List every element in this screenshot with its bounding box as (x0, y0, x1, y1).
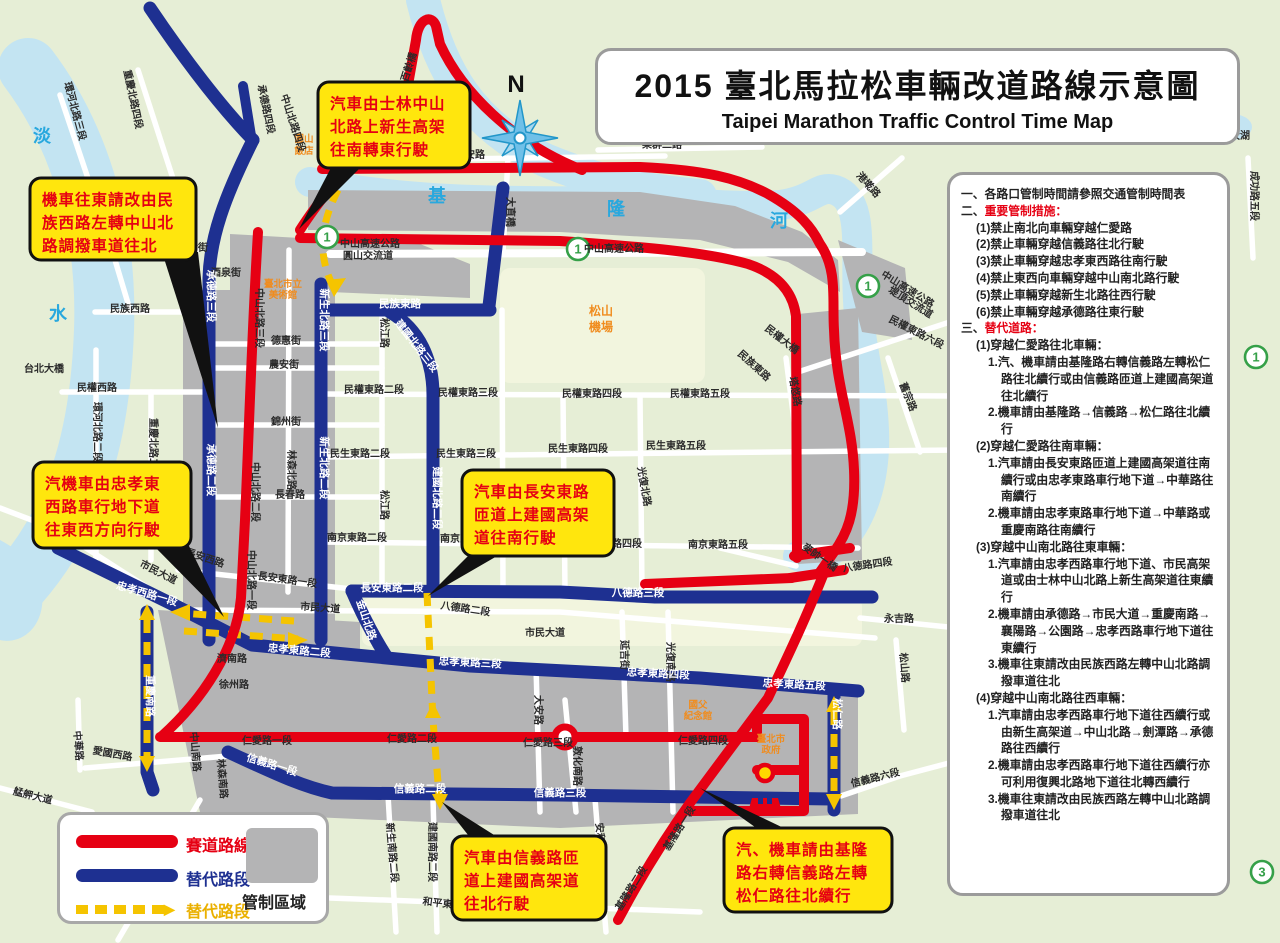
title-box: 2015 臺北馬拉松車輛改道路線示意圖 Taipei Marathon Traf… (595, 48, 1240, 145)
callout-text: 道往南行駛 (474, 528, 557, 547)
panel-line: (4)穿越中山南北路往西車輛： (961, 690, 1218, 707)
svg-text:1: 1 (864, 279, 871, 294)
map-label: 重慶南路 (144, 675, 157, 717)
map-label: 松仁路 (831, 698, 844, 730)
panel-line: 1.汽車請由忠孝西路車行地下道往西續行或由新生高架道→中山北路→劍潭路→承德路往… (961, 707, 1218, 757)
callout-text: 松仁路往北續行 (736, 886, 852, 905)
highway-shield: 1 (857, 275, 879, 297)
map-label: 永吉路 (883, 612, 915, 625)
map-label: 國父 (688, 700, 708, 711)
finish-gate-icon (748, 798, 782, 812)
svg-text:1: 1 (323, 230, 330, 245)
panel-line: (1)禁止南北向車輛穿越仁愛路 (961, 220, 1218, 237)
panel-line: 二、重要管制措施： (961, 203, 1218, 220)
traffic-control-notes-panel: 一、各路口管制時間請參照交通管制時間表二、重要管制措施：(1)禁止南北向車輛穿越… (947, 172, 1230, 896)
svg-text:3: 3 (1258, 865, 1265, 880)
legend-control-zone-swatch (246, 828, 318, 883)
map-label: 民族西路 (110, 302, 151, 315)
panel-line: 2.機車請由承德路→市民大道→重慶南路→襄陽路→公園路→忠孝西路車行地下道往東續… (961, 606, 1218, 656)
page-title-en: Taipei Marathon Traffic Control Time Map (598, 111, 1237, 134)
map-label: 民生東路四段 (548, 442, 608, 455)
map-label: 延吉街 (618, 639, 631, 670)
panel-line: (3)禁止車輛穿越忠孝東西路往南行駛 (961, 253, 1218, 270)
panel-line: 2.機車請由基隆路→信義路→松仁路往北續行 (961, 404, 1218, 438)
map-label: 新生北路三段 (318, 289, 331, 352)
map-label: 臺北市 (757, 733, 786, 745)
map-label: 民權西路 (77, 381, 118, 394)
map-label: 中山高速公路 (340, 237, 401, 250)
map-label: 承德路三段 (205, 270, 218, 323)
svg-text:1: 1 (574, 242, 581, 257)
callout-text: 路右轉信義路左轉 (736, 863, 868, 882)
map-label: 基 (427, 185, 447, 206)
panel-line: (1)穿越仁愛路往北車輛： (961, 337, 1218, 354)
map-label: 圓山交流道 (343, 249, 393, 262)
callout-text: 匝道上建國高架 (474, 505, 590, 524)
panel-line: (3)穿越中山南北路往東車輛： (961, 539, 1218, 556)
callout-text: 路調撥車道往北 (42, 236, 158, 255)
panel-line: (4)禁止東西向車輛穿越中山南北路行駛 (961, 270, 1218, 287)
map-label: 政府 (761, 744, 781, 756)
callout-text: 族西路左轉中山北 (42, 213, 174, 232)
map-label: 新生北路二段 (318, 437, 331, 500)
map-label: 民權東路四段 (562, 387, 622, 400)
map-label: 長安東路二段 (361, 581, 424, 594)
panel-line: (2)禁止車輛穿越信義路往北行駛 (961, 236, 1218, 253)
legend-control-zone-label: 管制區域 (242, 889, 306, 913)
panel-line: (5)禁止車輛穿越新生北路往西行駛 (961, 287, 1218, 304)
callout-text: 汽車由信義路匝 (464, 848, 580, 867)
map-label: 南京東路二段 (327, 531, 387, 544)
map-label: 民權東路三段 (438, 386, 498, 399)
map-label: 濟南路 (217, 652, 248, 665)
legend-arrow-icon: ▶ (164, 901, 175, 918)
map-label: 松江路 (378, 490, 391, 521)
legend-alt-dashed-line (76, 905, 164, 914)
map-label: 中山北路三段 (253, 288, 266, 348)
panel-line: 三、替代道路： (961, 320, 1218, 337)
map-label: 建國南路二段 (426, 821, 439, 882)
highway-shield: 1 (1245, 346, 1267, 368)
map-label: 民生東路五段 (646, 439, 706, 452)
panel-line: (2)穿越仁愛路往南車輛： (961, 438, 1218, 455)
compass-n-label: N (507, 71, 524, 98)
map-label: 仁愛路二段 (387, 732, 437, 745)
panel-line: (6)禁止車輛穿越承德路往東行駛 (961, 304, 1218, 321)
map-label: 水 (49, 303, 68, 324)
map-label: 機場 (589, 319, 613, 334)
map-label: 南京東路五段 (688, 538, 748, 551)
map-label: 松江路 (378, 318, 391, 349)
legend-alt-line (76, 869, 178, 882)
map-label: 敦化南路 (571, 746, 584, 787)
callout-text: 汽車由士林中山 (330, 94, 446, 113)
callout-text: 機車往東請改由民 (42, 190, 174, 209)
map-label: 民權東路二段 (344, 383, 404, 396)
map-label: 河 (770, 211, 788, 231)
panel-line: 1.汽、機車請由基隆路右轉信義路左轉松仁路往北續行或由信義路匝道上建國高架道往北… (961, 354, 1218, 404)
panel-line: 2.機車請由忠孝西路車行地下道往西續行亦可利用復興北路地下道往北轉西續行 (961, 757, 1218, 791)
legend: 賽道路線 替代路段 ▶ 替代路段 管制區域 (57, 812, 329, 924)
callout-text: 北路上新生高架 (330, 117, 446, 136)
map-label: 松山 (589, 303, 613, 318)
map-label: 環河北路二段 (91, 402, 104, 462)
panel-line: 3.機車往東請改由民族西路左轉中山北路調撥車道往北 (961, 791, 1218, 825)
callout-text: 汽機車由忠孝東 (45, 474, 161, 493)
panel-line: 2.機車請由忠孝東路車行地下道→中華路或重慶南路往南續行 (961, 505, 1218, 539)
map-label: 台北大橋 (24, 362, 65, 375)
map-label: 信義路三段 (534, 786, 587, 799)
map-label: 錦州街 (270, 415, 301, 428)
map-label: 大安路 (532, 695, 545, 726)
map-label: 八德路三段 (611, 586, 665, 599)
map-label: 大直橋 (504, 197, 517, 228)
map-label: 民生東路二段 (330, 447, 390, 460)
map-label: 中山高速公路 (584, 242, 645, 255)
callout-text: 往東西方向行駛 (45, 520, 161, 539)
legend-course-label: 賽道路線 (186, 832, 250, 856)
svg-text:1: 1 (1252, 350, 1259, 365)
map-label: 仁愛路三段 (523, 736, 573, 749)
map-label: 林森北路 (285, 450, 298, 491)
map-label: 建國北路二段 (431, 466, 444, 530)
map-label: 紀念館 (684, 710, 713, 722)
map-label: 民生東路三段 (436, 447, 496, 460)
map-label: 淡 (33, 126, 52, 146)
map-label: 徐州路 (218, 678, 250, 691)
map-label: 中山北路一段 (245, 550, 258, 610)
map-label: 成功路五段 (1248, 171, 1261, 221)
page-title: 2015 臺北馬拉松車輛改道路線示意圖 (598, 61, 1237, 107)
course-bade-rd (645, 578, 792, 584)
legend-course-line (76, 835, 178, 848)
map-label: 臺北市立 (264, 278, 303, 290)
map-label: 民族東路 (379, 297, 421, 310)
map-label: 德惠街 (270, 334, 301, 347)
highway-shield: 1 (316, 226, 338, 248)
panel-line: 一、各路口管制時間請參照交通管制時間表 (961, 186, 1218, 203)
panel-line: 1.汽車請由忠孝西路車行地下道、市民高架道或由士林中山北路上新生高架道往東續行 (961, 556, 1218, 606)
marathon-traffic-map-page: N 11113 淡水基隆河圓山飯店忠烈祠臺北市立美術館松山機場國父紀念館臺北市政… (0, 0, 1280, 943)
map-label: 仁愛路一段 (242, 734, 292, 747)
map-label: 隆 (607, 198, 626, 219)
panel-line: 3.機車往東請改由民族西路左轉中山北路調撥車道往北 (961, 656, 1218, 690)
map-label: 承德路二段 (205, 444, 218, 497)
callout-text: 汽車由長安東路 (474, 482, 590, 501)
callout-text: 往南轉東行駛 (330, 140, 429, 159)
map-label: 信義路二段 (394, 782, 447, 795)
map-label: 民權東路五段 (670, 387, 730, 400)
map-label: 仁愛路四段 (678, 734, 728, 747)
callout-text: 道上建國高架道 (464, 871, 580, 890)
callout-text: 往北行駛 (464, 894, 530, 913)
highway-shield: 3 (1251, 861, 1273, 883)
callout-text: 西路車行地下道 (45, 497, 161, 516)
map-label: 中山北路二段 (249, 462, 262, 522)
panel-line: 1.汽車請由長安東路匝道上建國高架道往南續行或由忠孝東路車行地下道→中華路往南續… (961, 455, 1218, 505)
map-label: 市民大道 (525, 626, 565, 639)
legend-alt2-label: 替代路段 (186, 898, 250, 922)
legend-alt-label: 替代路段 (186, 866, 250, 890)
map-label: 農安街 (269, 358, 299, 371)
finish-marker (757, 765, 773, 781)
map-label: 美術館 (268, 289, 298, 301)
callout-text: 汽、機車請由基隆 (736, 840, 868, 859)
